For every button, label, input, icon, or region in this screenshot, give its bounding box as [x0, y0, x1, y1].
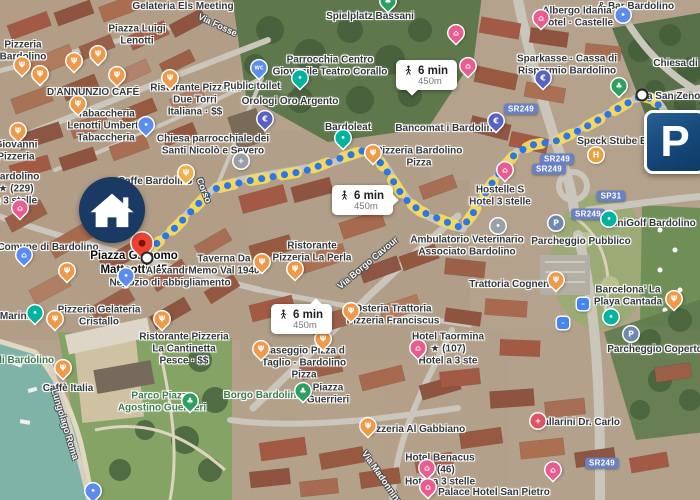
pin-glyph: • [28, 305, 43, 320]
map-pin: ♣ [179, 390, 200, 411]
road-shield: SR249 [504, 104, 538, 115]
map-pin: Ψ [29, 63, 50, 84]
pin-glyph: Ψ [255, 254, 270, 269]
map-pin: Ψ [357, 415, 378, 436]
pin-glyph: • [604, 310, 619, 325]
pin-glyph: ⌂ [449, 25, 464, 40]
map-pin: ⌂ [445, 22, 466, 43]
map-pin [143, 254, 152, 263]
map-pin: Ψ [250, 338, 271, 359]
map-pin: • [332, 127, 353, 148]
pin-glyph: Ψ [179, 165, 194, 180]
road-shield: SR249 [532, 164, 566, 175]
map-pin: • [115, 265, 136, 286]
pin-glyph: ♣ [612, 78, 627, 93]
pin-glyph: Ψ [110, 67, 125, 82]
map-pin: + [531, 414, 546, 429]
map-pin: Ψ [175, 162, 196, 183]
map-pin: • [82, 480, 103, 500]
map-pin: ⌂ [417, 476, 438, 497]
pin-glyph: Ψ [33, 66, 48, 81]
map-pin: Ψ [67, 93, 88, 114]
map-pin: – [577, 298, 589, 310]
map-pin: Ψ [159, 67, 180, 88]
pin-glyph: Ψ [549, 272, 564, 287]
map-pin: P [549, 216, 564, 231]
walk-distance: 450m [354, 202, 384, 212]
pin-glyph: • [293, 70, 308, 85]
pin-glyph: • [336, 130, 351, 145]
walk-time: 6 min [418, 65, 448, 77]
map-pin: ⌂ [457, 55, 478, 76]
pin-glyph: • [616, 8, 631, 23]
map-pin: • [491, 219, 506, 234]
home-marker [79, 177, 145, 243]
parking-sign-letter: P [660, 117, 689, 167]
map-pin: H [589, 148, 604, 163]
map-pin: € [485, 110, 506, 131]
map-pin: • [24, 302, 45, 323]
pin-glyph: ♣ [381, 0, 396, 8]
road-shield-text: SR249 [589, 459, 615, 468]
pin-glyph: ⌂ [411, 340, 426, 355]
pin-glyph: • [602, 212, 617, 227]
pin-glyph: Ψ [11, 123, 26, 138]
map-canvas[interactable]: Gelateria Els MeetingPiazza Luigi Lenott… [0, 0, 700, 500]
map-pin: Ψ [106, 64, 127, 85]
pin-glyph: € [536, 70, 551, 85]
walk-distance: 450m [418, 77, 448, 87]
map-pin: Ψ [56, 260, 77, 281]
pin-glyph: Ψ [163, 70, 178, 85]
road-shield: SR249 [585, 458, 619, 469]
pin-glyph: P [549, 216, 564, 231]
map-pin: Ψ [87, 43, 108, 64]
road-shield-text: SR249 [544, 155, 570, 164]
walk-time-badge: 6 min 450m [396, 60, 457, 90]
road-shield-text: SR249 [575, 210, 601, 219]
map-pin: Ψ [151, 308, 172, 329]
road-shield-text: SR249 [536, 165, 562, 174]
pin-glyph: – [557, 317, 569, 329]
map-pin: Ψ [251, 251, 272, 272]
pin-glyph: Ψ [288, 261, 303, 276]
map-pin: Ψ [340, 300, 361, 321]
map-pin: • [289, 67, 310, 88]
map-pin: ⌂ [542, 459, 563, 480]
walking-person-icon [339, 189, 350, 202]
map-pin: P [624, 327, 639, 342]
road-shield-text: SR249 [508, 105, 534, 114]
satellite-imagery [0, 0, 700, 500]
map-pin: € [532, 67, 553, 88]
map-pin: ⌂ [407, 337, 428, 358]
pin-glyph: ♣ [296, 383, 311, 398]
map-pin: + [234, 154, 249, 169]
map-pin: • [616, 8, 631, 23]
pin-glyph: Ψ [155, 311, 170, 326]
map-pin: Ψ [63, 50, 84, 71]
road-shield-text: SP31 [601, 192, 622, 201]
map-pin: Ψ [362, 142, 383, 163]
pin-glyph: Ψ [56, 360, 71, 375]
pin-glyph: + [234, 154, 249, 169]
map-pin: • [604, 310, 619, 325]
pin-glyph: ⌂ [498, 162, 513, 177]
map-pin: € [254, 108, 275, 129]
walking-person-icon [403, 64, 414, 77]
pin-glyph: • [139, 117, 154, 132]
map-pin: ⌂ [416, 457, 437, 478]
pin-glyph: • [491, 219, 506, 234]
map-pin: Ψ [545, 269, 566, 290]
map-pin: Ψ [7, 120, 28, 141]
map-pin: Ψ [284, 258, 305, 279]
pin-glyph: ⌂ [546, 462, 561, 477]
pin-glyph: Ψ [48, 311, 63, 326]
pin-glyph: Ψ [15, 57, 30, 72]
map-pin [638, 91, 647, 100]
pin-glyph: ⌂ [534, 10, 549, 25]
map-pin: Ψ [44, 308, 65, 329]
pin-glyph: P [624, 327, 639, 342]
home-icon [86, 184, 138, 236]
pin-glyph: € [489, 113, 504, 128]
walk-time: 6 min [354, 190, 384, 202]
map-pin: ♣ [292, 380, 313, 401]
parking-sign: P [644, 110, 700, 174]
pin-glyph: ⌂ [421, 479, 436, 494]
map-pin: Ψ [52, 357, 73, 378]
map-pin: ♣ [608, 75, 629, 96]
pin-glyph: ⌂ [13, 200, 28, 215]
pin-glyph: ⌂ [17, 247, 32, 262]
map-pin: ⌂ [530, 7, 551, 28]
walk-time-badge: 6 min 450m [332, 185, 393, 215]
walk-time: 6 min [293, 309, 323, 321]
pin-glyph: Ψ [254, 341, 269, 356]
walk-distance: 450m [293, 321, 323, 331]
map-pin: • [135, 114, 156, 135]
pin-glyph: Ψ [667, 291, 682, 306]
pin-glyph: Ψ [71, 96, 86, 111]
map-pin: ⌂ [494, 159, 515, 180]
pin-glyph: – [577, 298, 589, 310]
pin-glyph: H [589, 148, 604, 163]
pin-glyph: ♣ [183, 393, 198, 408]
map-pin: Ψ [663, 288, 684, 309]
pin-glyph: WC [252, 60, 267, 75]
map-pin: ⌂ [9, 197, 30, 218]
map-pin: • [602, 212, 617, 227]
walk-time-badge: 6 min 450m [271, 304, 332, 334]
pin-glyph: • [119, 268, 134, 283]
map-pin: Ψ [11, 54, 32, 75]
pin-glyph: € [258, 111, 273, 126]
pin-glyph: ⌂ [461, 58, 476, 73]
pin-glyph: Ψ [91, 46, 106, 61]
pin-glyph: Ψ [67, 53, 82, 68]
pin-glyph: + [531, 414, 546, 429]
pin-glyph: Ψ [344, 303, 359, 318]
pin-glyph: Ψ [60, 263, 75, 278]
map-pin: – [557, 317, 569, 329]
map-pin: WC [248, 57, 269, 78]
pin-glyph: ⌂ [420, 460, 435, 475]
walking-person-icon [278, 308, 289, 321]
pin-glyph: Ψ [361, 418, 376, 433]
pin-glyph: • [86, 483, 101, 498]
road-shield: SP31 [597, 191, 626, 202]
road-shield: SR249 [571, 209, 605, 220]
pin-glyph: Ψ [366, 145, 381, 160]
map-pin: ⌂ [13, 244, 34, 265]
